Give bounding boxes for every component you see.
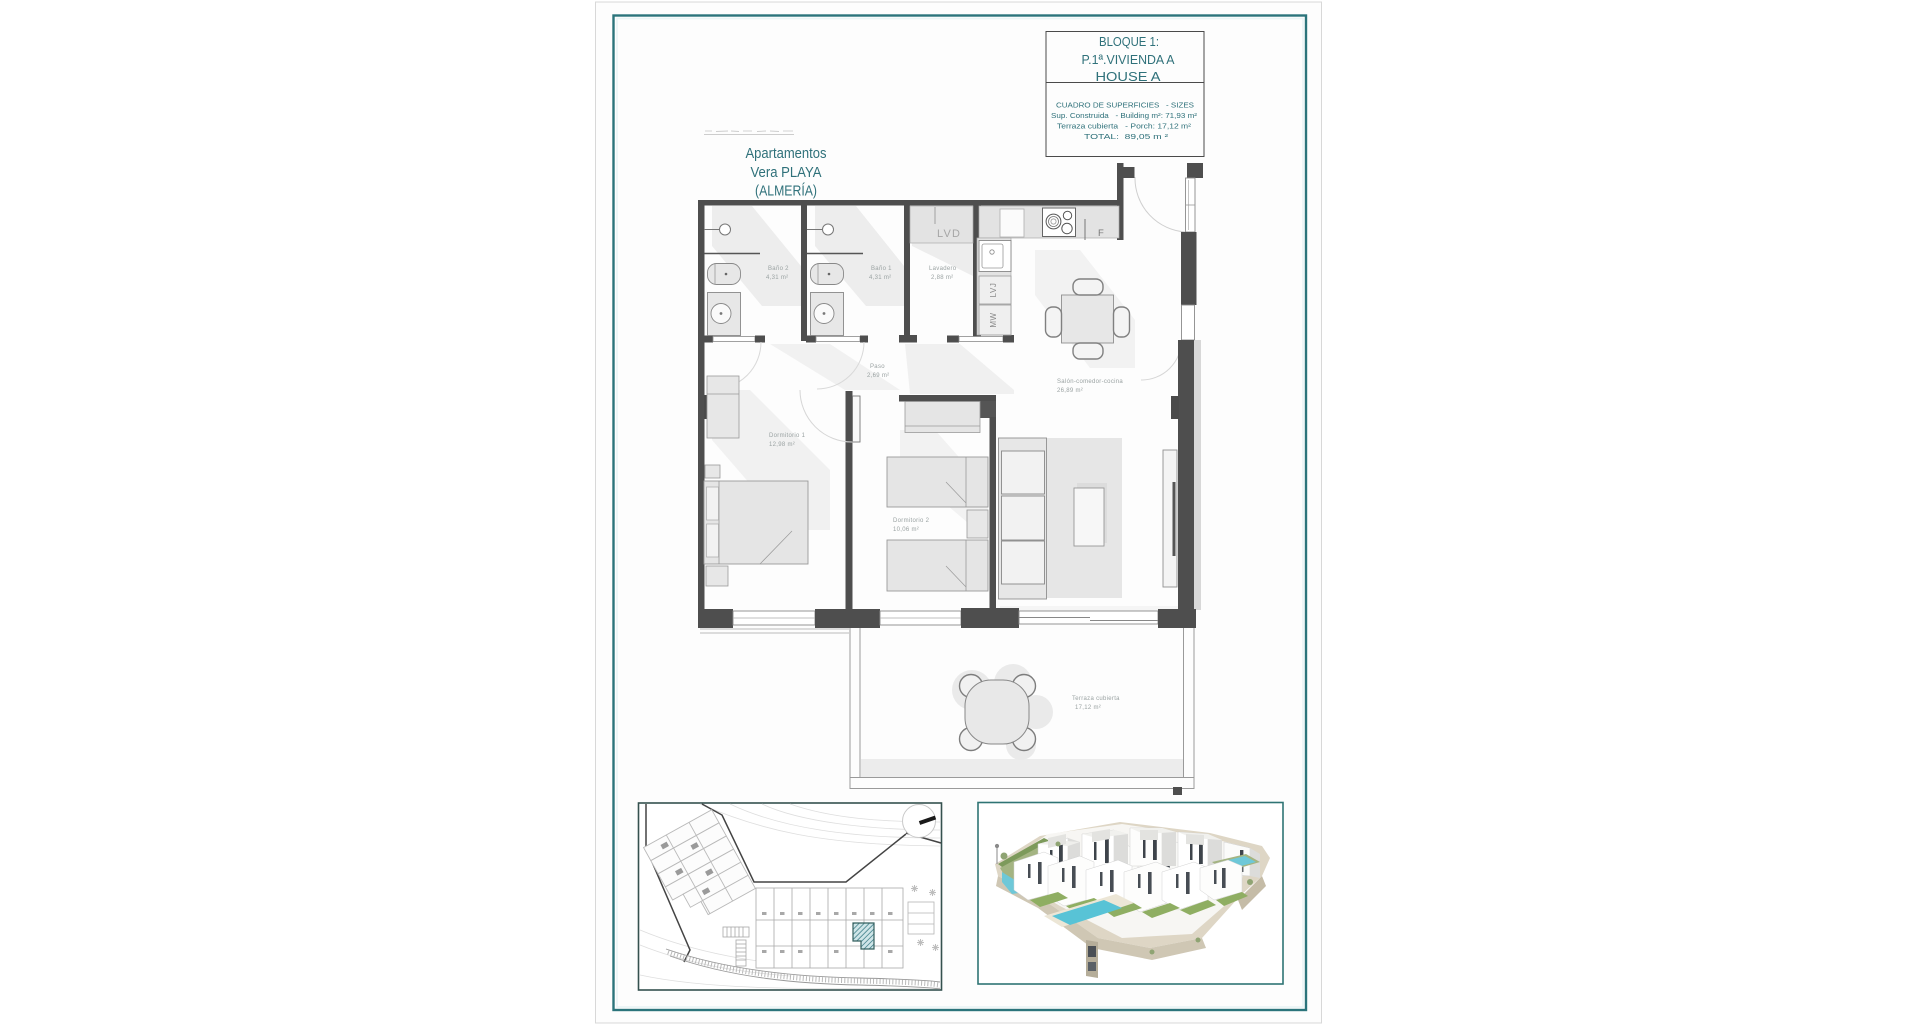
svg-text:LVD: LVD — [937, 228, 961, 240]
svg-text:Terraza cubierta - Porch: 17: Terraza cubierta - Porch: 17,12 m² — [1057, 124, 1192, 131]
svg-text:HOUSE A: HOUSE A — [1096, 69, 1162, 84]
svg-text:(ALMERÍA): (ALMERÍA) — [755, 183, 817, 200]
svg-text:4,31 m²: 4,31 m² — [869, 275, 891, 281]
svg-text:Apartamentos: Apartamentos — [746, 146, 827, 162]
svg-text:Baño 1: Baño 1 — [871, 266, 892, 272]
svg-text:2,88 m²: 2,88 m² — [931, 275, 953, 281]
svg-text:F: F — [1098, 228, 1104, 239]
svg-text:Salón-comedor-cocina: Salón-comedor-cocina — [1057, 379, 1123, 385]
svg-text:CUADRO DE SUPERFICIES - SIZE: CUADRO DE SUPERFICIES - SIZES — [1056, 103, 1194, 110]
svg-text:2,69 m²: 2,69 m² — [867, 373, 889, 379]
svg-text:Dormitorio 2: Dormitorio 2 — [893, 518, 930, 524]
svg-text:Sup. Construida - Building m: Sup. Construida - Building m²: 71,93 m² — [1051, 113, 1198, 120]
svg-text:4,31 m²: 4,31 m² — [766, 275, 788, 281]
svg-text:Terraza cubierta: Terraza cubierta — [1072, 696, 1120, 702]
svg-text:Baño 2: Baño 2 — [768, 266, 789, 272]
svg-text:26,89 m²: 26,89 m² — [1057, 388, 1083, 394]
svg-text:12,98 m²: 12,98 m² — [769, 442, 795, 448]
svg-text:MW: MW — [989, 312, 998, 327]
svg-text:P.1ª.VIVIENDA A: P.1ª.VIVIENDA A — [1082, 52, 1175, 67]
svg-text:TOTAL: 89,05 m ²: TOTAL: 89,05 m ² — [1084, 134, 1169, 141]
svg-text:BLOQUE 1:: BLOQUE 1: — [1099, 34, 1159, 49]
svg-text:Lavadero: Lavadero — [929, 266, 957, 272]
svg-text:Dormitorio 1: Dormitorio 1 — [769, 433, 806, 439]
svg-text:Paso: Paso — [870, 364, 885, 370]
svg-text:17,12 m²: 17,12 m² — [1075, 705, 1101, 711]
svg-text:10,06 m²: 10,06 m² — [893, 527, 919, 533]
svg-text:Vera PLAYA: Vera PLAYA — [751, 165, 822, 181]
svg-text:LVJ: LVJ — [989, 283, 998, 298]
